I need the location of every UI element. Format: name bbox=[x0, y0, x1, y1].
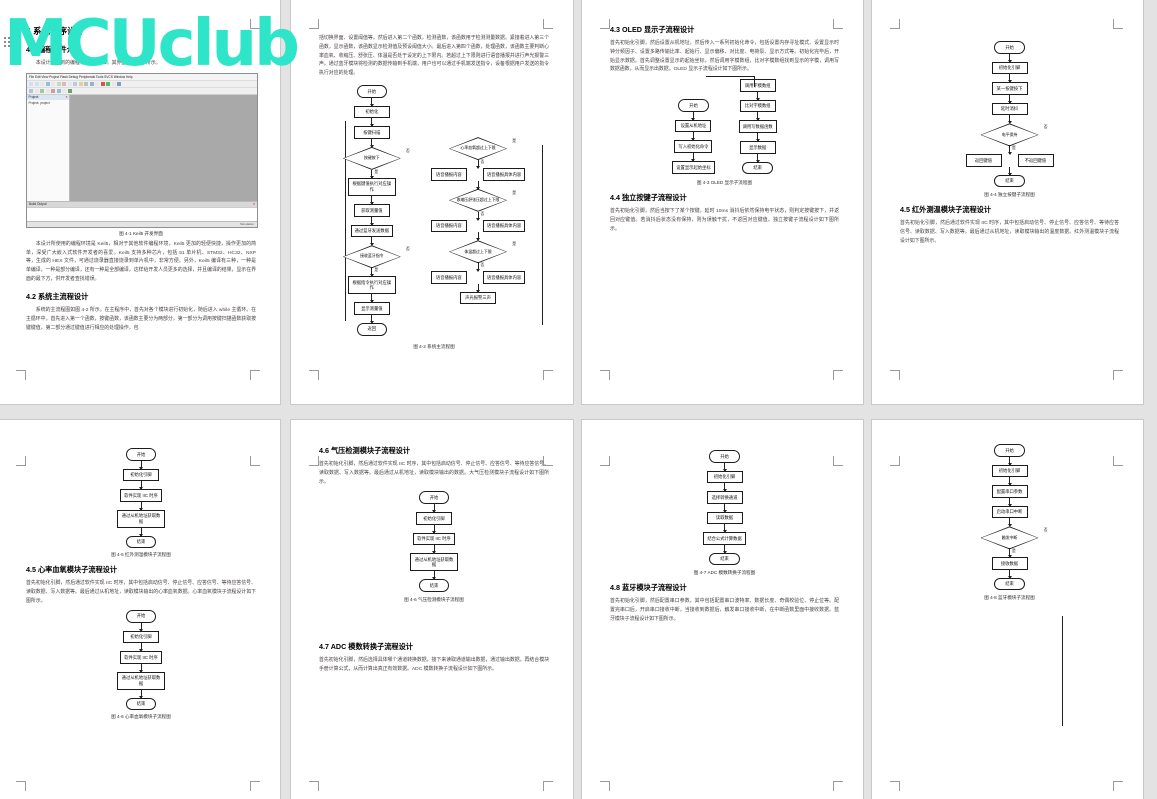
flow-arrow bbox=[141, 528, 142, 536]
page-2[interactable]: 括切换界面、设置阈值等。然后进入第二个函数，检测函数，该函数用于检测测量数据。紧… bbox=[290, 0, 574, 405]
flowchart-diamond: 心率血氧超过上下限是 bbox=[449, 137, 507, 160]
flow-arrow bbox=[757, 133, 758, 141]
flow-arrow bbox=[141, 623, 142, 631]
figure-caption-4-2: 图 4-2 系统主流程图 bbox=[319, 344, 549, 350]
figure-caption-4-3: 图 4-3 OLED 显示子流程图 bbox=[610, 180, 839, 186]
flowchart-box: 声光报警三声 bbox=[460, 292, 496, 305]
flowchart-box: 语音播报具体内容 bbox=[483, 271, 525, 284]
flow-arrow bbox=[141, 502, 142, 510]
section-heading-4-7: 4.7 ADC 模数转换子流程设计 bbox=[319, 642, 549, 652]
flowchart-terminal: 开始 bbox=[419, 491, 450, 504]
flow-arrow bbox=[693, 112, 694, 120]
flowchart-branch-row: 语音播报内容语音播报具体内容 bbox=[431, 271, 525, 284]
flow-arrow bbox=[693, 153, 694, 161]
flowchart-box: 语音播报具体内容 bbox=[483, 220, 525, 233]
flow-arrow: 否 bbox=[478, 263, 479, 271]
flowchart-box: 初始化引脚 bbox=[416, 512, 452, 525]
pressure-flowchart: 开始初始化引脚软件实现 IIC 时序通过从机地址获取数据结束 bbox=[319, 491, 549, 591]
spo2-flowchart: 开始初始化引脚软件实现 IIC 时序通过从机地址获取数据结束 bbox=[26, 610, 256, 710]
flowchart-box: 启动串口中断 bbox=[992, 506, 1028, 519]
page-7[interactable]: 开始初始化引脚选择转换通道读取数据结合公式计算数据结束 图 4-7 ADC 模数… bbox=[581, 419, 864, 799]
flow-arrow bbox=[1009, 74, 1010, 82]
key-flowchart: 开始初始化引脚某一按键按下延时消抖电平保持否是返回键值不返回键值结束 bbox=[900, 41, 1119, 187]
page-1[interactable]: 4 系统程序设计 4.1 编程软件介绍 本设计所用到的编程软件为 Keil5，其… bbox=[0, 0, 281, 405]
flowchart-box: 设置显示起始坐标 bbox=[672, 161, 714, 174]
flow-arrow bbox=[434, 504, 435, 512]
flowchart-terminal: 开始 bbox=[994, 444, 1025, 457]
flowchart-box: 初始化 bbox=[354, 106, 390, 119]
flow-arrow: 是 bbox=[1009, 146, 1010, 154]
ir-temp-flowchart: 开始初始化引脚软件实现 IIC 时序通过从机地址获取数据结束 bbox=[26, 448, 256, 548]
flowchart-box: 语音播报具体内容 bbox=[483, 168, 525, 181]
flowchart-box: 根据键值执行对应操作 bbox=[348, 178, 396, 196]
figure-caption-4-7: 图 4-7 ADC 模数转换子流程图 bbox=[610, 570, 839, 576]
flow-arrow bbox=[371, 196, 372, 204]
paragraph: 本设计所用到的编程软件为 Keil5，其界面如图 4-1 所示。 bbox=[26, 60, 256, 69]
connector-line bbox=[542, 145, 543, 325]
document-canvas: MCUclub 4 系统程序设计 4.1 编程软件介绍 本设计所用到的编程软件为… bbox=[0, 0, 1157, 799]
connector-line bbox=[1062, 616, 1063, 726]
flowchart-terminal: 开始 bbox=[678, 99, 709, 112]
flow-arrow bbox=[1009, 457, 1010, 465]
flowchart-branch-row: 返回键值不返回键值 bbox=[966, 154, 1054, 167]
flowchart-branch-row: 语音播报内容语音播报具体内容 bbox=[431, 168, 525, 181]
section-heading-4-8: 4.8 蓝牙模块子流程设计 bbox=[610, 583, 839, 593]
flowchart-box: 初始化引脚 bbox=[123, 631, 159, 644]
flowchart-box: 延时消抖 bbox=[992, 103, 1028, 116]
oled-flowchart: 开始设置从机地址写入初始化命令设置显示起始坐标 调用字模数组比对字模数组调用写数… bbox=[610, 79, 839, 174]
flowchart-terminal: 结束 bbox=[126, 698, 157, 711]
flowchart-terminal: 结束 bbox=[994, 175, 1025, 188]
flow-arrow bbox=[1009, 95, 1010, 103]
flowchart-terminal: 结束 bbox=[994, 578, 1025, 591]
flow-arrow bbox=[478, 284, 479, 292]
close-icon[interactable]: × bbox=[253, 202, 255, 206]
flow-arrow: 是 bbox=[371, 268, 372, 276]
flow-arrow bbox=[757, 112, 758, 120]
flowchart-box: 读取数据 bbox=[707, 512, 743, 525]
flow-arrow bbox=[1009, 167, 1010, 175]
flowchart-box: 初始化引脚 bbox=[707, 471, 743, 484]
flowchart-box: 获取测量值 bbox=[354, 204, 390, 217]
flowchart-terminal: 结束 bbox=[709, 553, 740, 566]
section-heading-4-2: 4.2 系统主流程设计 bbox=[26, 292, 256, 302]
keil-toolbar-2 bbox=[27, 87, 257, 94]
flow-arrow bbox=[141, 690, 142, 698]
flow-arrow bbox=[1009, 54, 1010, 62]
flowchart-branch-row: 语音播报内容语音播报具体内容 bbox=[431, 220, 525, 233]
flow-arrow bbox=[141, 643, 142, 651]
flow-arrow bbox=[434, 545, 435, 553]
keil-project-panel: Project× Project: project bbox=[27, 95, 70, 201]
flowchart-diamond: 按键按下否 bbox=[343, 147, 401, 170]
flow-arrow bbox=[478, 232, 479, 240]
paragraph: 首先初始化引脚，然后通过软件实现 IIC 时序，其中包括启动信号、停止信号、应答… bbox=[900, 220, 1119, 246]
close-icon[interactable]: × bbox=[66, 95, 68, 99]
figure-caption-4-5: 图 4-5 红外测温模块子流程图 bbox=[26, 552, 256, 558]
flowchart-box: 通过从机地址获取数据 bbox=[117, 510, 165, 528]
flow-arrow bbox=[1009, 570, 1010, 578]
paragraph: 首先初始化引脚，然后当按下了某个按键，延时 10ms 消抖后依然保持电平状态，则… bbox=[610, 208, 839, 234]
flowchart-box: 配置串口参数 bbox=[992, 485, 1028, 498]
flowchart-box: 结合公式计算数据 bbox=[703, 532, 745, 545]
flow-arrow bbox=[141, 664, 142, 672]
flowchart-box: 按键扫描 bbox=[354, 126, 390, 139]
flow-arrow bbox=[434, 571, 435, 579]
flow-arrow: 否 bbox=[478, 212, 479, 220]
project-panel-title: Project bbox=[29, 95, 39, 99]
flowchart-terminal: 开始 bbox=[709, 450, 740, 463]
flowchart-terminal: 开始 bbox=[994, 41, 1025, 54]
flowchart-box: 根据指令执行对应操作 bbox=[348, 276, 396, 294]
flow-arrow bbox=[757, 154, 758, 162]
flow-arrow bbox=[141, 461, 142, 469]
section-heading-4-5b: 4.5 心率血氧模块子流程设计 bbox=[26, 565, 256, 575]
flow-arrow bbox=[371, 315, 372, 323]
flowchart-box: 通过从机地址获取数据 bbox=[410, 553, 458, 571]
page-6[interactable]: 4.6 气压检测模块子流程设计 首先初始化引脚，然后通过软件实现 IIC 时序，… bbox=[290, 419, 574, 799]
section-heading-4-4: 4.4 独立按键子流程设计 bbox=[610, 193, 839, 203]
figure-caption-4-1: 图 4-1 Keil5 开发界面 bbox=[26, 231, 256, 237]
flowchart-terminal: 结束 bbox=[126, 536, 157, 549]
figure-caption-4-4: 图 4-4 独立按键子流程图 bbox=[900, 192, 1119, 198]
page-8[interactable]: 开始初始化引脚配置串口参数启动串口中断触发中断否是接收数据结束 图 4-8 蓝牙… bbox=[871, 419, 1144, 799]
paragraph: 括切换界面、设置阈值等。然后进入第二个函数，检测函数，该函数用于检测测量数据。紧… bbox=[319, 35, 549, 79]
page-4[interactable]: 开始初始化引脚某一按键按下延时消抖电平保持否是返回键值不返回键值结束 图 4-4… bbox=[871, 0, 1144, 405]
build-output-title: Build Output bbox=[29, 202, 47, 206]
flowchart-box: 初始化引脚 bbox=[123, 469, 159, 482]
flowchart-box: 显示测量值 bbox=[354, 302, 390, 315]
flowchart-terminal: 开始 bbox=[126, 448, 157, 461]
paragraph: 本设计所使用的编程环境是 Keil5，相对于其他软件编程环境，Keil5 更加的… bbox=[26, 241, 256, 285]
section-heading-4-1: 4.1 编程软件介绍 bbox=[26, 45, 256, 55]
flowchart-terminal: 开始 bbox=[357, 85, 388, 98]
flowchart-diamond: 收缩压舒张压超过上下限是 bbox=[449, 189, 507, 212]
flowchart-diamond: 接收蓝牙指令否 bbox=[343, 245, 401, 268]
figure-caption-4-6b: 图 4-6 气压检测模块子流程图 bbox=[319, 597, 549, 603]
flowchart-box: 初始化引脚 bbox=[992, 465, 1028, 478]
section-heading-4-6: 4.6 气压检测模块子流程设计 bbox=[319, 446, 549, 456]
paragraph: 首先初始化引脚，然后配置串口参数，其中包括配置串口波特率、数据长度、奇偶校验位、… bbox=[610, 598, 839, 624]
chapter-heading: 4 系统程序设计 bbox=[26, 25, 256, 37]
flowchart-box: 软件实现 IIC 时序 bbox=[120, 651, 162, 664]
paragraph: 首先初始化引脚，然后设置从机地址，然后传入一系列初始化命令，包括设置内存寻址模式… bbox=[610, 40, 839, 75]
flowchart-box: 初始化引脚 bbox=[992, 62, 1028, 75]
flowchart-diamond: 体温超过上下限是 bbox=[449, 240, 507, 263]
flow-arrow bbox=[724, 524, 725, 532]
flow-arrow: 是 bbox=[1009, 549, 1010, 557]
flowchart-box: 设置从机地址 bbox=[675, 120, 711, 133]
flow-arrow bbox=[724, 463, 725, 471]
flow-arrow bbox=[371, 98, 372, 106]
figure-caption-4-6: 图 4-6 心率血氧模块子流程图 bbox=[26, 714, 256, 720]
flow-arrow bbox=[371, 139, 372, 147]
keil-status-bar: Simulation bbox=[27, 221, 257, 227]
flow-arrow bbox=[693, 132, 694, 140]
page-3[interactable]: 4.3 OLED 显示子流程设计 首先初始化引脚，然后设置从机地址，然后传入一系… bbox=[581, 0, 864, 405]
paragraph: 首先初始化引脚，然后选择具体哪个通道转换数据，接下来读取通道输出数据，通过输出数… bbox=[319, 657, 549, 675]
section-heading-4-5: 4.5 红外测温模块子流程设计 bbox=[900, 205, 1119, 215]
flowchart-terminal: 结束 bbox=[742, 162, 773, 175]
flowchart-diamond: 触发中断否 bbox=[981, 526, 1039, 549]
flow-arrow bbox=[371, 294, 372, 302]
page-5[interactable]: 开始初始化引脚软件实现 IIC 时序通过从机地址获取数据结束 图 4-5 红外测… bbox=[0, 419, 281, 799]
flowchart-terminal: 返回 bbox=[357, 323, 388, 336]
adc-flowchart: 开始初始化引脚选择转换通道读取数据结合公式计算数据结束 bbox=[610, 450, 839, 565]
flowchart-box: 显示数据 bbox=[740, 141, 776, 154]
figure-caption-4-8: 图 4-8 蓝牙模块子流程图 bbox=[900, 595, 1119, 601]
flowchart-box: 选择转换通道 bbox=[707, 491, 743, 504]
paragraph: 首先初始化引脚，然后通过软件实现 IIC 时序，其中包括启动信号、停止信号、应答… bbox=[319, 461, 549, 487]
flow-arrow bbox=[1009, 115, 1010, 123]
flowchart-box: 返回键值 bbox=[966, 154, 1002, 167]
flow-arrow: 是 bbox=[371, 170, 372, 178]
flowchart-box: 不返回键值 bbox=[1018, 154, 1054, 167]
flow-arrow bbox=[1009, 518, 1010, 526]
flowchart-terminal: 开始 bbox=[126, 610, 157, 623]
flow-arrow bbox=[371, 237, 372, 245]
flowchart-box: 语音播报内容 bbox=[431, 168, 467, 181]
paragraph: 首先初始化引脚，然后通过软件实现 IIC 时序，其中包括启动信号、停止信号、应答… bbox=[26, 580, 256, 606]
flowchart-box: 语音播报内容 bbox=[431, 271, 467, 284]
keil-screenshot: File Edit View Project Flash Debug Perip… bbox=[26, 73, 258, 228]
flow-arrow bbox=[434, 525, 435, 533]
flowchart-box: 比对字模数组 bbox=[740, 100, 776, 113]
paragraph: 系统的主流程图如图 4-2 所示。在主程序中，首先对各个模块进行初始化，随后进入… bbox=[26, 307, 256, 333]
keil-toolbar bbox=[27, 80, 257, 87]
section-heading-4-3: 4.3 OLED 显示子流程设计 bbox=[610, 25, 839, 35]
flowchart-box: 通过蓝牙发送数据 bbox=[351, 225, 393, 238]
flowchart-box: 语音播报内容 bbox=[431, 220, 467, 233]
flow-arrow bbox=[724, 483, 725, 491]
flowchart-box: 软件实现 IIC 时序 bbox=[120, 489, 162, 502]
flow-arrow bbox=[1009, 498, 1010, 506]
flow-arrow: 否 bbox=[478, 160, 479, 168]
flowchart-box: 写入初始化命令 bbox=[674, 140, 712, 153]
flow-arrow bbox=[1009, 477, 1010, 485]
flowchart-terminal: 结束 bbox=[419, 579, 450, 592]
bluetooth-flowchart: 开始初始化引脚配置串口参数启动串口中断触发中断否是接收数据结束 bbox=[900, 444, 1119, 590]
flow-arrow bbox=[724, 504, 725, 512]
flowchart-box: 接收数据 bbox=[992, 557, 1028, 570]
flowchart-box: 软件实现 IIC 时序 bbox=[413, 533, 455, 546]
flow-arrow bbox=[724, 545, 725, 553]
connector-line bbox=[706, 76, 755, 87]
flow-arrow bbox=[141, 481, 142, 489]
flowchart-diamond: 电平保持否 bbox=[981, 123, 1039, 146]
flowchart-box: 某一按键按下 bbox=[992, 82, 1028, 95]
keil-editor-area bbox=[70, 95, 257, 201]
build-output-area bbox=[27, 207, 257, 221]
flow-arrow bbox=[757, 92, 758, 100]
flow-arrow bbox=[478, 181, 479, 189]
flowchart-box: 通过从机地址获取数据 bbox=[117, 672, 165, 690]
flowchart-box: 调用写数据函数 bbox=[739, 120, 777, 133]
system-main-flowchart: 开始初始化按键扫描按键按下否是根据键值执行对应操作获取测量值通过蓝牙发送数据接收… bbox=[319, 85, 549, 335]
flow-arrow bbox=[371, 118, 372, 126]
project-tree-item[interactable]: Project: project bbox=[27, 100, 69, 107]
drag-handle-dots-icon[interactable] bbox=[4, 37, 10, 47]
flow-arrow bbox=[371, 217, 372, 225]
